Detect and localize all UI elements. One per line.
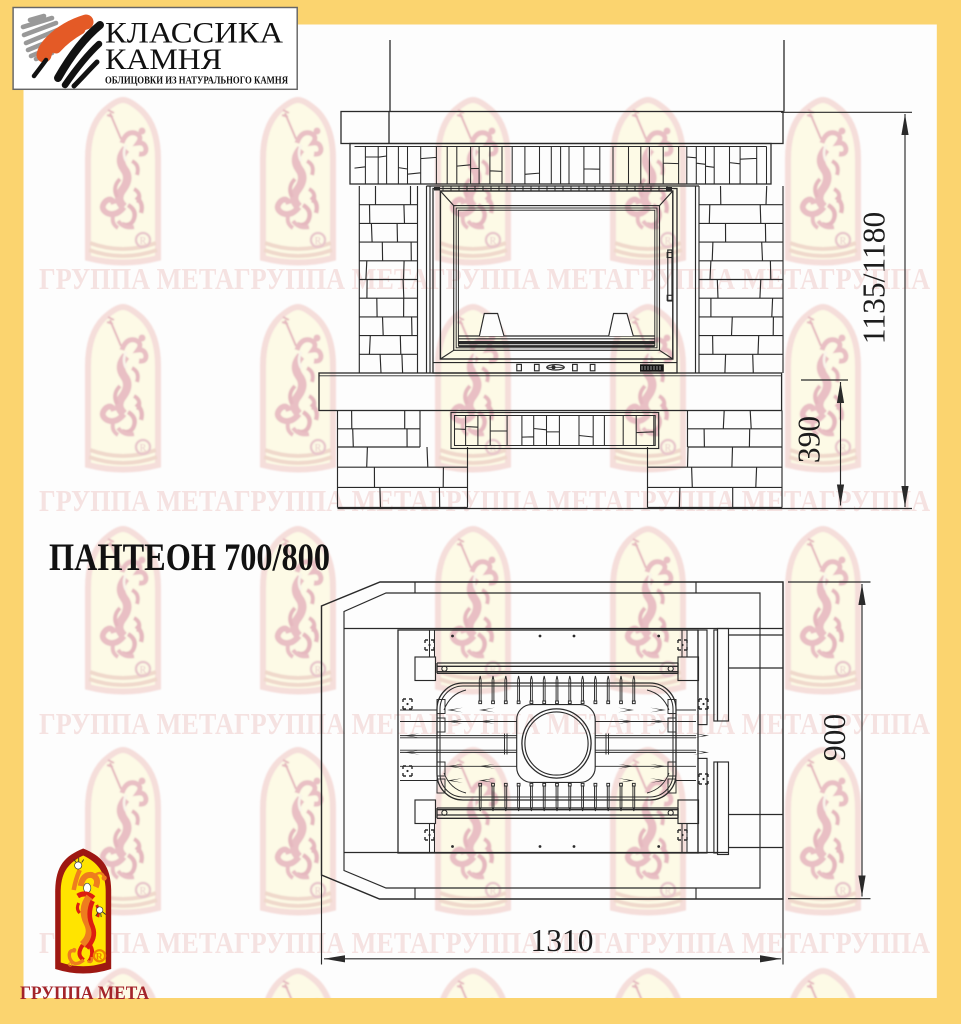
svg-text:1135/1180: 1135/1180	[857, 212, 892, 344]
svg-text:ГРУППА МЕТАГРУППА МЕТАГРУППА М: ГРУППА МЕТАГРУППА МЕТАГРУППА МЕТАГРУППА …	[39, 483, 961, 518]
svg-text:ОБЛИЦОВКИ ИЗ НАТУРАЛЬНОГО КАМН: ОБЛИЦОВКИ ИЗ НАТУРАЛЬНОГО КАМНЯ	[105, 76, 288, 87]
svg-text:1310: 1310	[531, 923, 594, 958]
svg-text:ГРУППА МЕТАГРУППА МЕТАГРУППА М: ГРУППА МЕТАГРУППА МЕТАГРУППА МЕТАГРУППА …	[39, 925, 961, 960]
svg-text:R: R	[96, 953, 103, 963]
svg-text:КАМНЯ: КАМНЯ	[105, 43, 222, 76]
svg-text:900: 900	[817, 714, 852, 761]
svg-text:ГРУППА МЕТАГРУППА МЕТАГРУППА М: ГРУППА МЕТАГРУППА МЕТАГРУППА МЕТАГРУППА …	[39, 261, 961, 296]
svg-text:390: 390	[792, 416, 827, 463]
svg-text:ПАНТЕОН 700/800: ПАНТЕОН 700/800	[49, 536, 330, 579]
svg-text:ГРУППА МЕТА: ГРУППА МЕТА	[20, 984, 150, 1004]
